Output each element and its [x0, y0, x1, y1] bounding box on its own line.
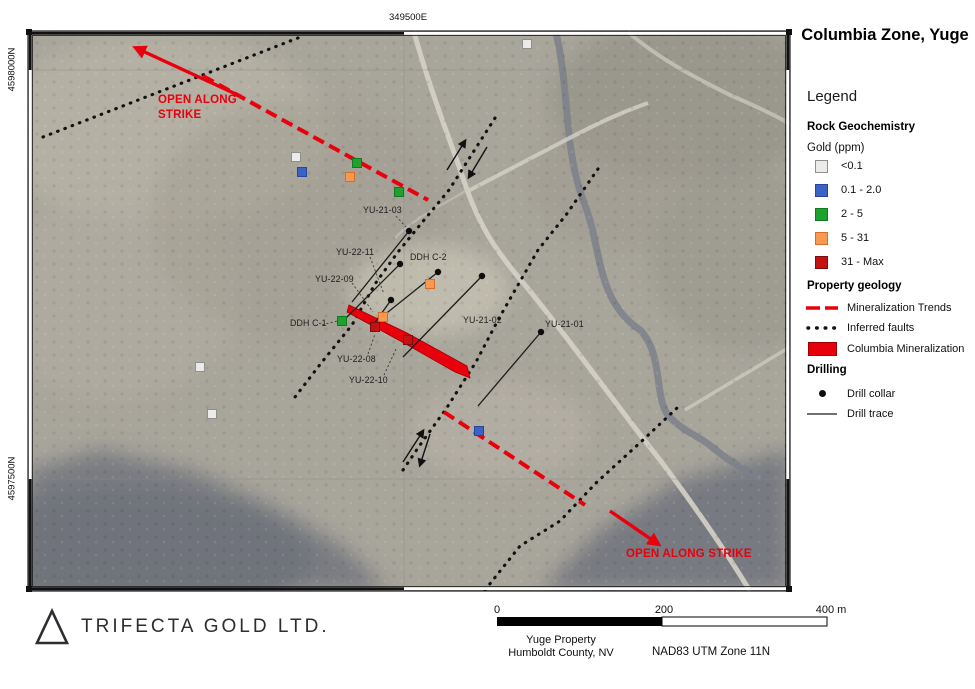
- drill-collar-dot: [538, 329, 544, 335]
- triangle-logo-icon: [34, 607, 70, 647]
- drill-collar-dot: [397, 261, 403, 267]
- label-leader-line: [368, 334, 375, 354]
- scale-mid-label: 200: [655, 604, 673, 616]
- rock-sample-r: [371, 323, 380, 332]
- drilling-heading: Drilling: [807, 364, 975, 376]
- drill-trace-line: [478, 332, 541, 406]
- drill-hole-label: DDH C-1: [290, 318, 327, 328]
- scale-bar-black-segment: [497, 617, 662, 626]
- frame-corner-ticks: [26, 29, 792, 592]
- scale-end-label: 400 m: [816, 604, 847, 616]
- drill-hole-label: YU-22-11: [336, 247, 374, 257]
- legend-item-label: 0.1 - 2.0: [841, 184, 881, 196]
- trend-symbol-icon: [805, 304, 839, 312]
- label-leader-line: [384, 349, 396, 375]
- legend-item-drill-trace: Drill trace: [805, 408, 975, 420]
- grid-label-northing-lower: 4597500N: [7, 444, 18, 514]
- legend-item-inferred-faults: Inferred faults: [805, 322, 975, 334]
- drill-trace-icon: [805, 411, 839, 417]
- legend-item-mineralization-trends: Mineralization Trends: [805, 302, 975, 314]
- swatch-blue: [815, 184, 828, 197]
- drill-hole-label: YU-22-10: [349, 375, 388, 385]
- inferred-fault-line: [485, 408, 677, 590]
- aerial-drainage: [556, 33, 762, 478]
- drill-hole-label: DDH C-2: [410, 252, 447, 262]
- scale-bar-white-segment: [662, 617, 827, 626]
- drill-collar-icon: [805, 390, 839, 397]
- map-frame: [26, 29, 792, 592]
- aerial-road-main: [414, 32, 750, 591]
- drill-hole-label: YU-21-02: [463, 315, 502, 325]
- rock-sample-lt01: [196, 363, 205, 372]
- rock-sample-g: [353, 159, 362, 168]
- swatch-orange: [815, 232, 828, 245]
- mineralization-trend-line: [444, 412, 585, 505]
- property-name: Yuge Property: [496, 634, 626, 647]
- rock-sample-o: [346, 173, 355, 182]
- open-along-strike-upper: OPEN ALONG STRIKE: [158, 93, 250, 123]
- graticule: [28, 31, 790, 591]
- rock-sample-lt01: [292, 153, 301, 162]
- gold-unit-label: Gold (ppm): [807, 142, 975, 154]
- map-title: Columbia Zone, Yuge: [799, 26, 971, 46]
- columbia-mineralization-polygon: [347, 305, 470, 378]
- inferred-fault-line: [295, 118, 495, 397]
- rock-sample-b: [475, 427, 484, 436]
- drill-collar-dot: [388, 297, 394, 303]
- fault-movement-arrow: [403, 431, 423, 462]
- drill-hole-label: YU-22-09: [315, 274, 354, 284]
- legend-item-gold-lt01: <0.1: [815, 160, 975, 173]
- rock-geochemistry-heading: Rock Geochemistry: [807, 121, 975, 133]
- drill-hole-label: YU-21-01: [545, 319, 584, 329]
- rock-sample-r: [404, 336, 413, 345]
- grid-label-easting: 349500E: [389, 12, 427, 23]
- rock-sample-b: [298, 168, 307, 177]
- rock-sample-o: [426, 280, 435, 289]
- drill-collar-dot: [406, 228, 412, 234]
- swatch-red: [815, 256, 828, 269]
- rock-sample-lt01: [208, 410, 217, 419]
- datum-label: NAD83 UTM Zone 11N: [652, 646, 770, 658]
- legend-item-gold-5-31: 5 - 31: [815, 232, 975, 245]
- legend-item-label: 2 - 5: [841, 208, 863, 220]
- legend-item-label: 31 - Max: [841, 256, 884, 268]
- label-leader-line: [396, 216, 406, 227]
- legend-item-label: <0.1: [841, 160, 863, 172]
- fault-movement-arrow: [447, 141, 465, 170]
- legend-item-label: 5 - 31: [841, 232, 869, 244]
- rock-sample-g: [395, 188, 404, 197]
- map-figure: 349500E 4598000N 4597500N OPEN ALONG STR…: [0, 0, 975, 689]
- swatch-lt01: [815, 160, 828, 173]
- drill-hole-label: YU-22-08: [337, 354, 376, 364]
- drill-trace-line: [383, 272, 438, 316]
- rock-sample-lt01: [523, 40, 532, 49]
- drill-collar-dot: [435, 269, 441, 275]
- aerial-track: [395, 188, 470, 238]
- property-caption: Yuge Property Humboldt County, NV: [496, 634, 626, 660]
- scale-start-label: 0: [494, 604, 500, 616]
- aerial-road-topright: [628, 32, 790, 124]
- rock-sample-g: [338, 317, 347, 326]
- grid-label-northing-upper: 4598000N: [7, 35, 18, 105]
- company-logo: TRIFECTA GOLD LTD.: [34, 607, 330, 647]
- property-location: Humboldt County, NV: [496, 647, 626, 660]
- fault-symbol-icon: [805, 324, 839, 332]
- mineralization-symbol-icon: [805, 342, 839, 356]
- drill-trace-line: [371, 300, 391, 328]
- legend-item-gold-0.1-2.0: 0.1 - 2.0: [815, 184, 975, 197]
- legend-item-label: Mineralization Trends: [847, 302, 952, 314]
- legend-item-gold-31-max: 31 - Max: [815, 256, 975, 269]
- drill-trace-line: [346, 264, 400, 318]
- aerial-road-branch: [470, 103, 648, 190]
- label-leader-line: [352, 283, 373, 312]
- fault-movement-arrow: [469, 147, 487, 177]
- drill-trace-line: [352, 231, 409, 302]
- legend-item-columbia-mineralization: Columbia Mineralization: [805, 342, 975, 356]
- legend-item-label: Drill collar: [847, 388, 895, 400]
- fault-movement-arrow: [420, 434, 430, 465]
- company-name: TRIFECTA GOLD LTD.: [81, 616, 330, 638]
- legend-item-drill-collar: Drill collar: [805, 388, 975, 400]
- open-along-strike-arrow: [610, 511, 658, 544]
- drill-hole-label: YU-21-03: [363, 205, 402, 215]
- property-geology-heading: Property geology: [807, 280, 975, 292]
- aerial-terrain: [0, 20, 850, 630]
- legend-item-gold-2-5: 2 - 5: [815, 208, 975, 221]
- aerial-road-east: [685, 347, 790, 410]
- legend-item-label: Columbia Mineralization: [847, 343, 964, 355]
- scale-bar: 0 200 400 m: [490, 598, 850, 634]
- swatch-green: [815, 208, 828, 221]
- open-along-strike-arrow: [136, 48, 240, 96]
- legend-heading: Legend: [807, 88, 975, 105]
- rock-sample-o: [379, 313, 388, 322]
- label-leader-line: [370, 257, 384, 294]
- open-along-strike-lower: OPEN ALONG STRIKE: [626, 547, 752, 562]
- legend-item-label: Inferred faults: [847, 322, 914, 334]
- legend-item-label: Drill trace: [847, 408, 893, 420]
- drill-collar-dot: [479, 273, 485, 279]
- legend-panel: Columbia Zone, Yuge Legend Rock Geochemi…: [795, 0, 975, 689]
